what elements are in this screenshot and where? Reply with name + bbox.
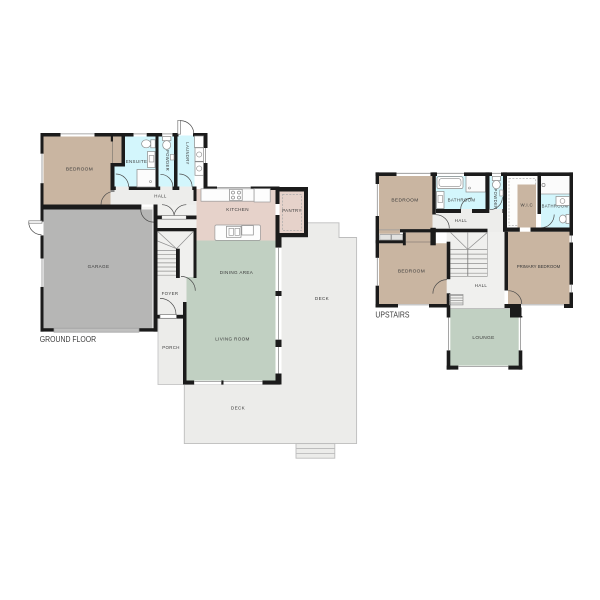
svg-text:HALL: HALL	[475, 283, 488, 288]
svg-text:PORCH: PORCH	[162, 345, 180, 350]
svg-text:FOYER: FOYER	[162, 291, 179, 296]
svg-text:HALL: HALL	[154, 193, 167, 198]
svg-text:BEDROOM: BEDROOM	[398, 268, 425, 274]
svg-text:GROUND FLOOR: GROUND FLOOR	[40, 334, 96, 344]
svg-text:LOUNGE: LOUNGE	[472, 335, 494, 341]
svg-text:DECK: DECK	[315, 296, 330, 301]
svg-text:POWDER: POWDER	[165, 150, 170, 171]
svg-text:HALL: HALL	[455, 218, 468, 223]
svg-text:PRIMARY BEDROOM: PRIMARY BEDROOM	[517, 264, 561, 270]
svg-text:DINING AREA: DINING AREA	[220, 270, 254, 275]
svg-text:UPSTAIRS: UPSTAIRS	[375, 310, 409, 320]
svg-text:DECK: DECK	[231, 405, 246, 410]
svg-text:BEDROOM: BEDROOM	[66, 166, 93, 172]
svg-text:PANTRY: PANTRY	[282, 208, 302, 213]
svg-text:POWDER: POWDER	[493, 189, 498, 210]
svg-text:ENSUITE: ENSUITE	[126, 159, 147, 164]
svg-text:GARAGE: GARAGE	[88, 264, 110, 269]
svg-text:W.I.C: W.I.C	[521, 203, 533, 208]
svg-text:LIVING ROOM: LIVING ROOM	[215, 336, 249, 341]
svg-text:BATHROOM: BATHROOM	[448, 197, 476, 202]
svg-text:LAUNDRY: LAUNDRY	[185, 142, 190, 164]
svg-text:KITCHEN: KITCHEN	[226, 207, 249, 212]
svg-text:BEDROOM: BEDROOM	[391, 197, 418, 203]
